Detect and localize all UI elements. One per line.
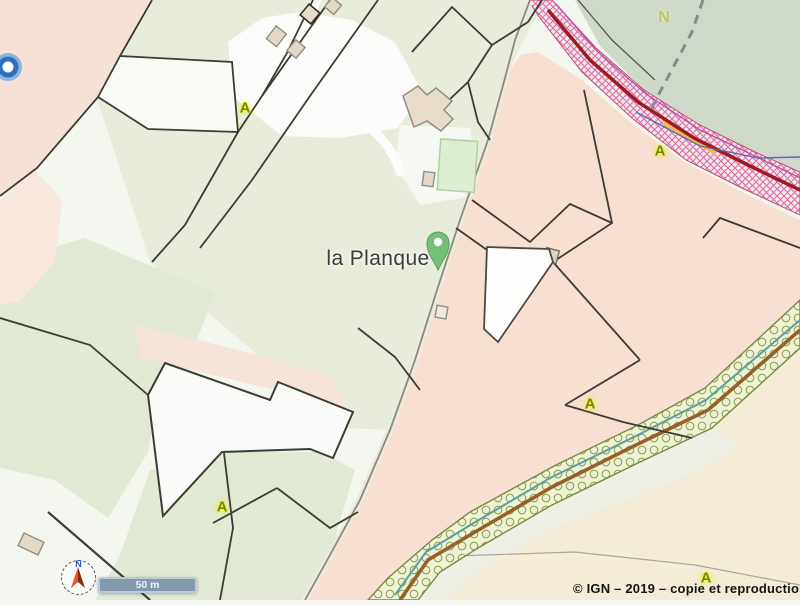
scale-bar: 50 m <box>98 577 197 593</box>
scale-bar-label: 50 m <box>136 579 160 591</box>
map-graphics <box>0 0 800 600</box>
green-court <box>437 139 477 192</box>
building <box>422 171 435 186</box>
building <box>435 305 448 319</box>
map-canvas[interactable] <box>0 0 800 600</box>
copyright-text: © IGN – 2019 – copie et reproduction in <box>573 581 800 596</box>
compass-needle-icon <box>62 561 94 593</box>
compass-north-icon: N <box>61 560 96 595</box>
